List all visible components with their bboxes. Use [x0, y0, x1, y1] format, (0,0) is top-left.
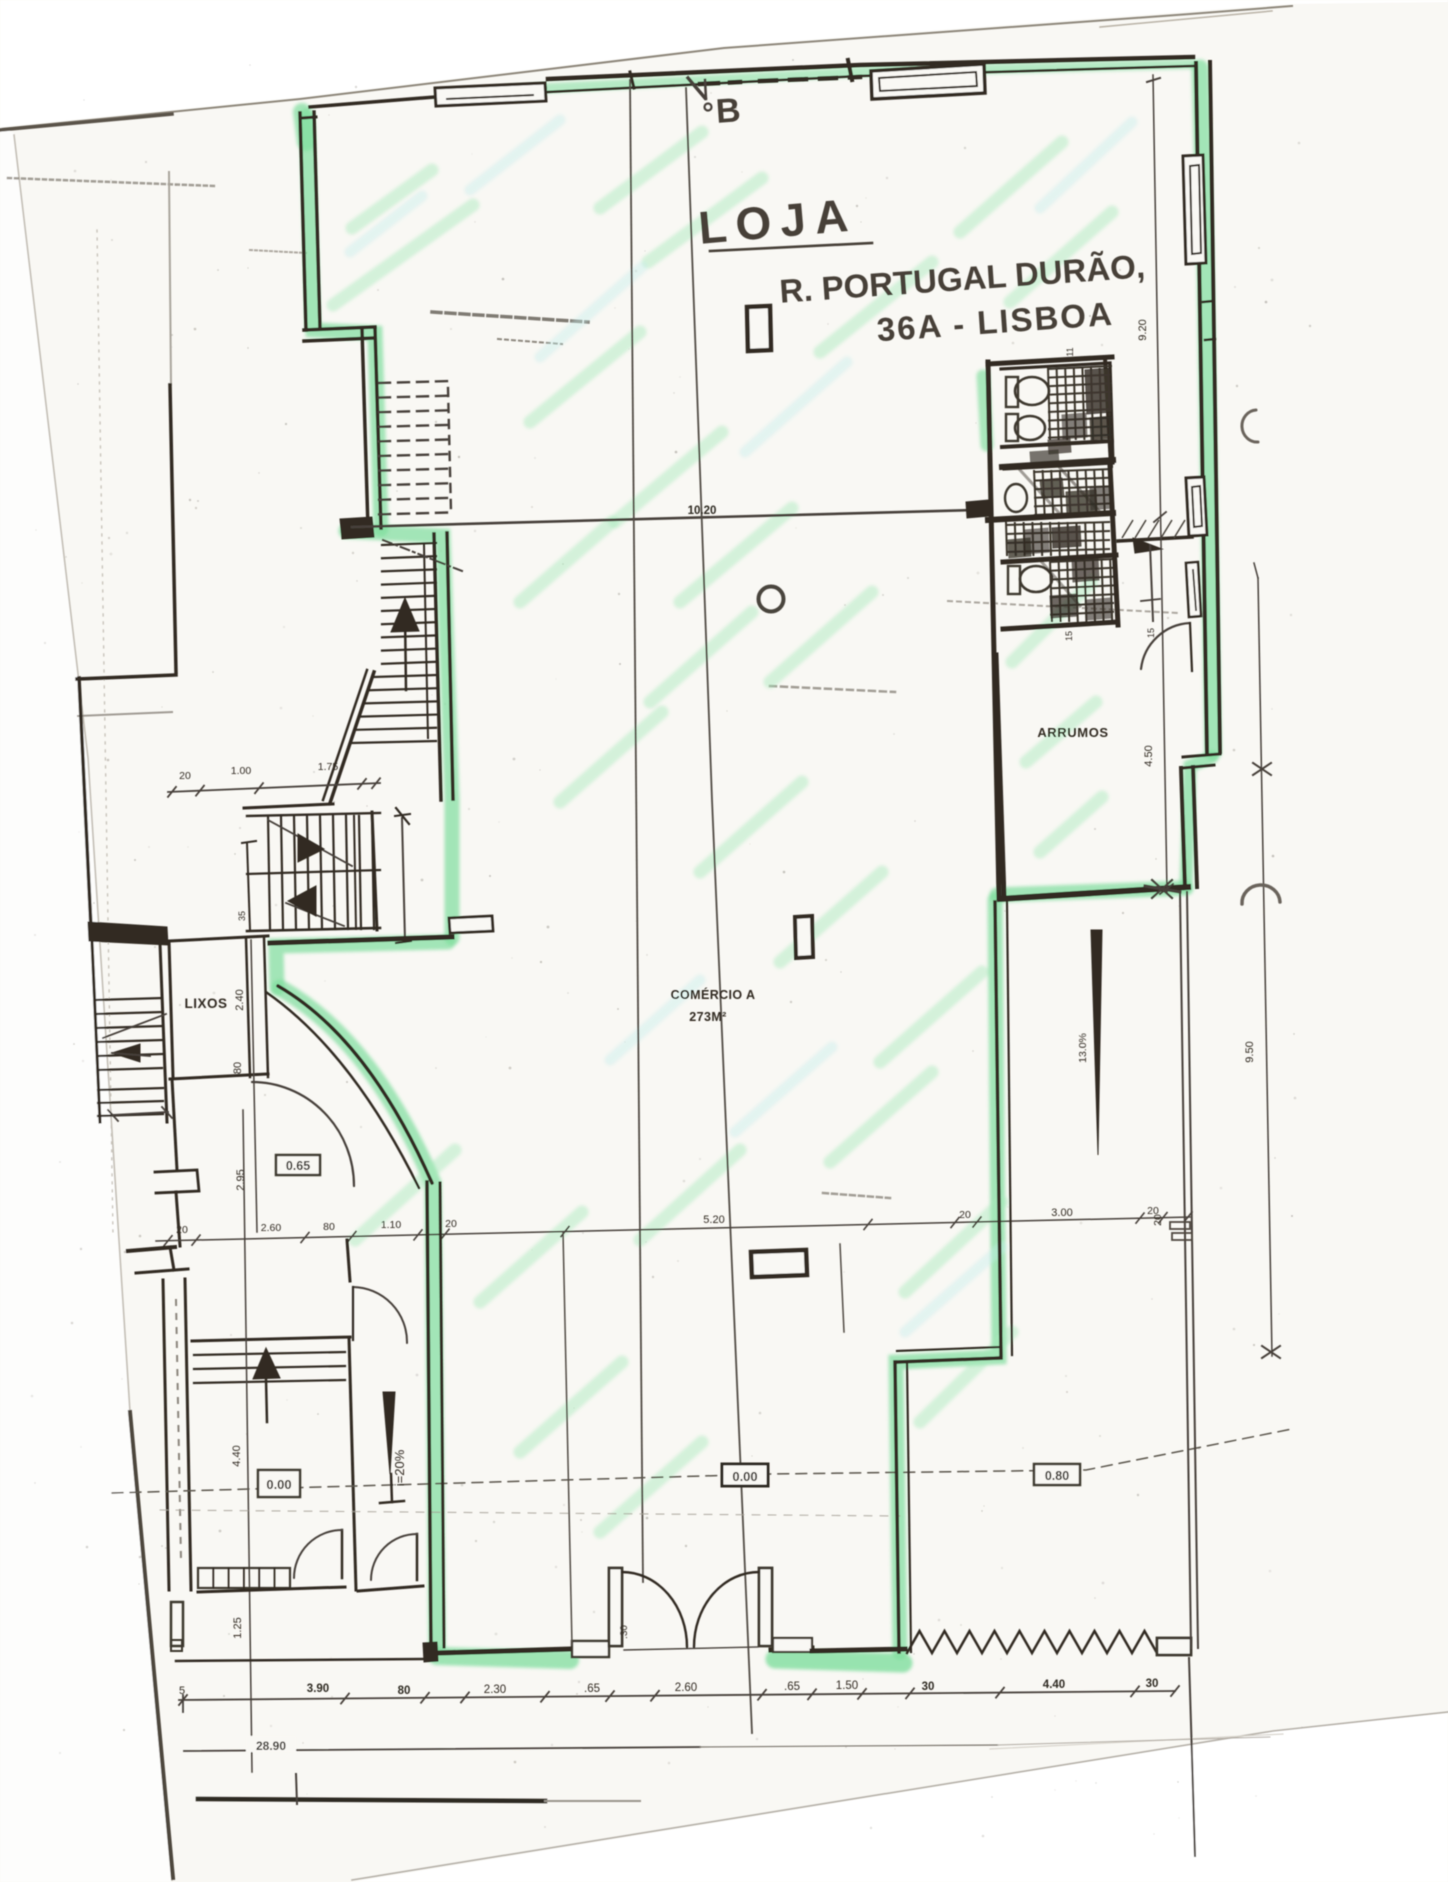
svg-text:2.60: 2.60 [261, 1222, 282, 1234]
svg-text:20: 20 [445, 1218, 457, 1230]
svg-text:10.20: 10.20 [688, 505, 717, 517]
svg-text:3.00: 3.00 [1051, 1207, 1072, 1219]
svg-text:11: 11 [1065, 347, 1075, 356]
svg-text:20: 20 [179, 770, 191, 782]
svg-text:1.00: 1.00 [231, 765, 252, 777]
svg-text:15: 15 [1146, 628, 1156, 638]
svg-text:0.00: 0.00 [266, 1477, 291, 1492]
svg-text:2.60: 2.60 [675, 1682, 697, 1694]
svg-text:COMÉRCIO A: COMÉRCIO A [671, 987, 756, 1002]
svg-text:20: 20 [1152, 1214, 1164, 1226]
svg-text:B: B [715, 91, 742, 131]
svg-text:LIXOS: LIXOS [184, 996, 227, 1011]
svg-text:0.65: 0.65 [286, 1159, 310, 1173]
svg-text:9.20: 9.20 [1137, 319, 1149, 340]
svg-text:80: 80 [232, 1062, 244, 1074]
svg-text:4.50: 4.50 [1143, 745, 1155, 766]
svg-text:80: 80 [398, 1685, 411, 1697]
svg-text:30: 30 [1146, 1678, 1159, 1690]
svg-text:2.95: 2.95 [235, 1169, 247, 1190]
svg-text:20: 20 [176, 1224, 188, 1236]
svg-text:3.90: 3.90 [307, 1683, 329, 1695]
svg-text:35: 35 [237, 911, 247, 921]
svg-text:5: 5 [179, 1685, 185, 1697]
svg-text:.65: .65 [784, 1681, 800, 1693]
svg-text:1.75: 1.75 [318, 761, 339, 773]
svg-text:273M²: 273M² [689, 1010, 726, 1024]
svg-text:9.50: 9.50 [1244, 1041, 1256, 1062]
svg-text:i=20%: i=20% [392, 1449, 407, 1486]
svg-text:.30: .30 [619, 1625, 630, 1639]
svg-text:1.25: 1.25 [232, 1617, 244, 1638]
svg-text:13.0%: 13.0% [1077, 1033, 1089, 1063]
svg-text:ARRUMOS: ARRUMOS [1037, 725, 1108, 740]
svg-text:2.40: 2.40 [234, 989, 246, 1010]
svg-text:0.80: 0.80 [1045, 1469, 1069, 1483]
svg-text:20: 20 [959, 1209, 971, 1221]
svg-text:2.30: 2.30 [484, 1684, 506, 1696]
svg-text:28.90: 28.90 [256, 1739, 286, 1753]
svg-text:4.40: 4.40 [231, 1445, 243, 1466]
svg-text:.65: .65 [584, 1683, 600, 1695]
svg-text:1.50: 1.50 [836, 1680, 858, 1692]
svg-text:80: 80 [323, 1221, 335, 1233]
svg-text:0.00: 0.00 [732, 1469, 757, 1484]
svg-text:30: 30 [922, 1681, 935, 1693]
svg-text:1.10: 1.10 [381, 1219, 402, 1231]
svg-text:15: 15 [1064, 631, 1074, 641]
svg-text:5.20: 5.20 [703, 1214, 724, 1226]
svg-text:4.40: 4.40 [1043, 1679, 1065, 1691]
